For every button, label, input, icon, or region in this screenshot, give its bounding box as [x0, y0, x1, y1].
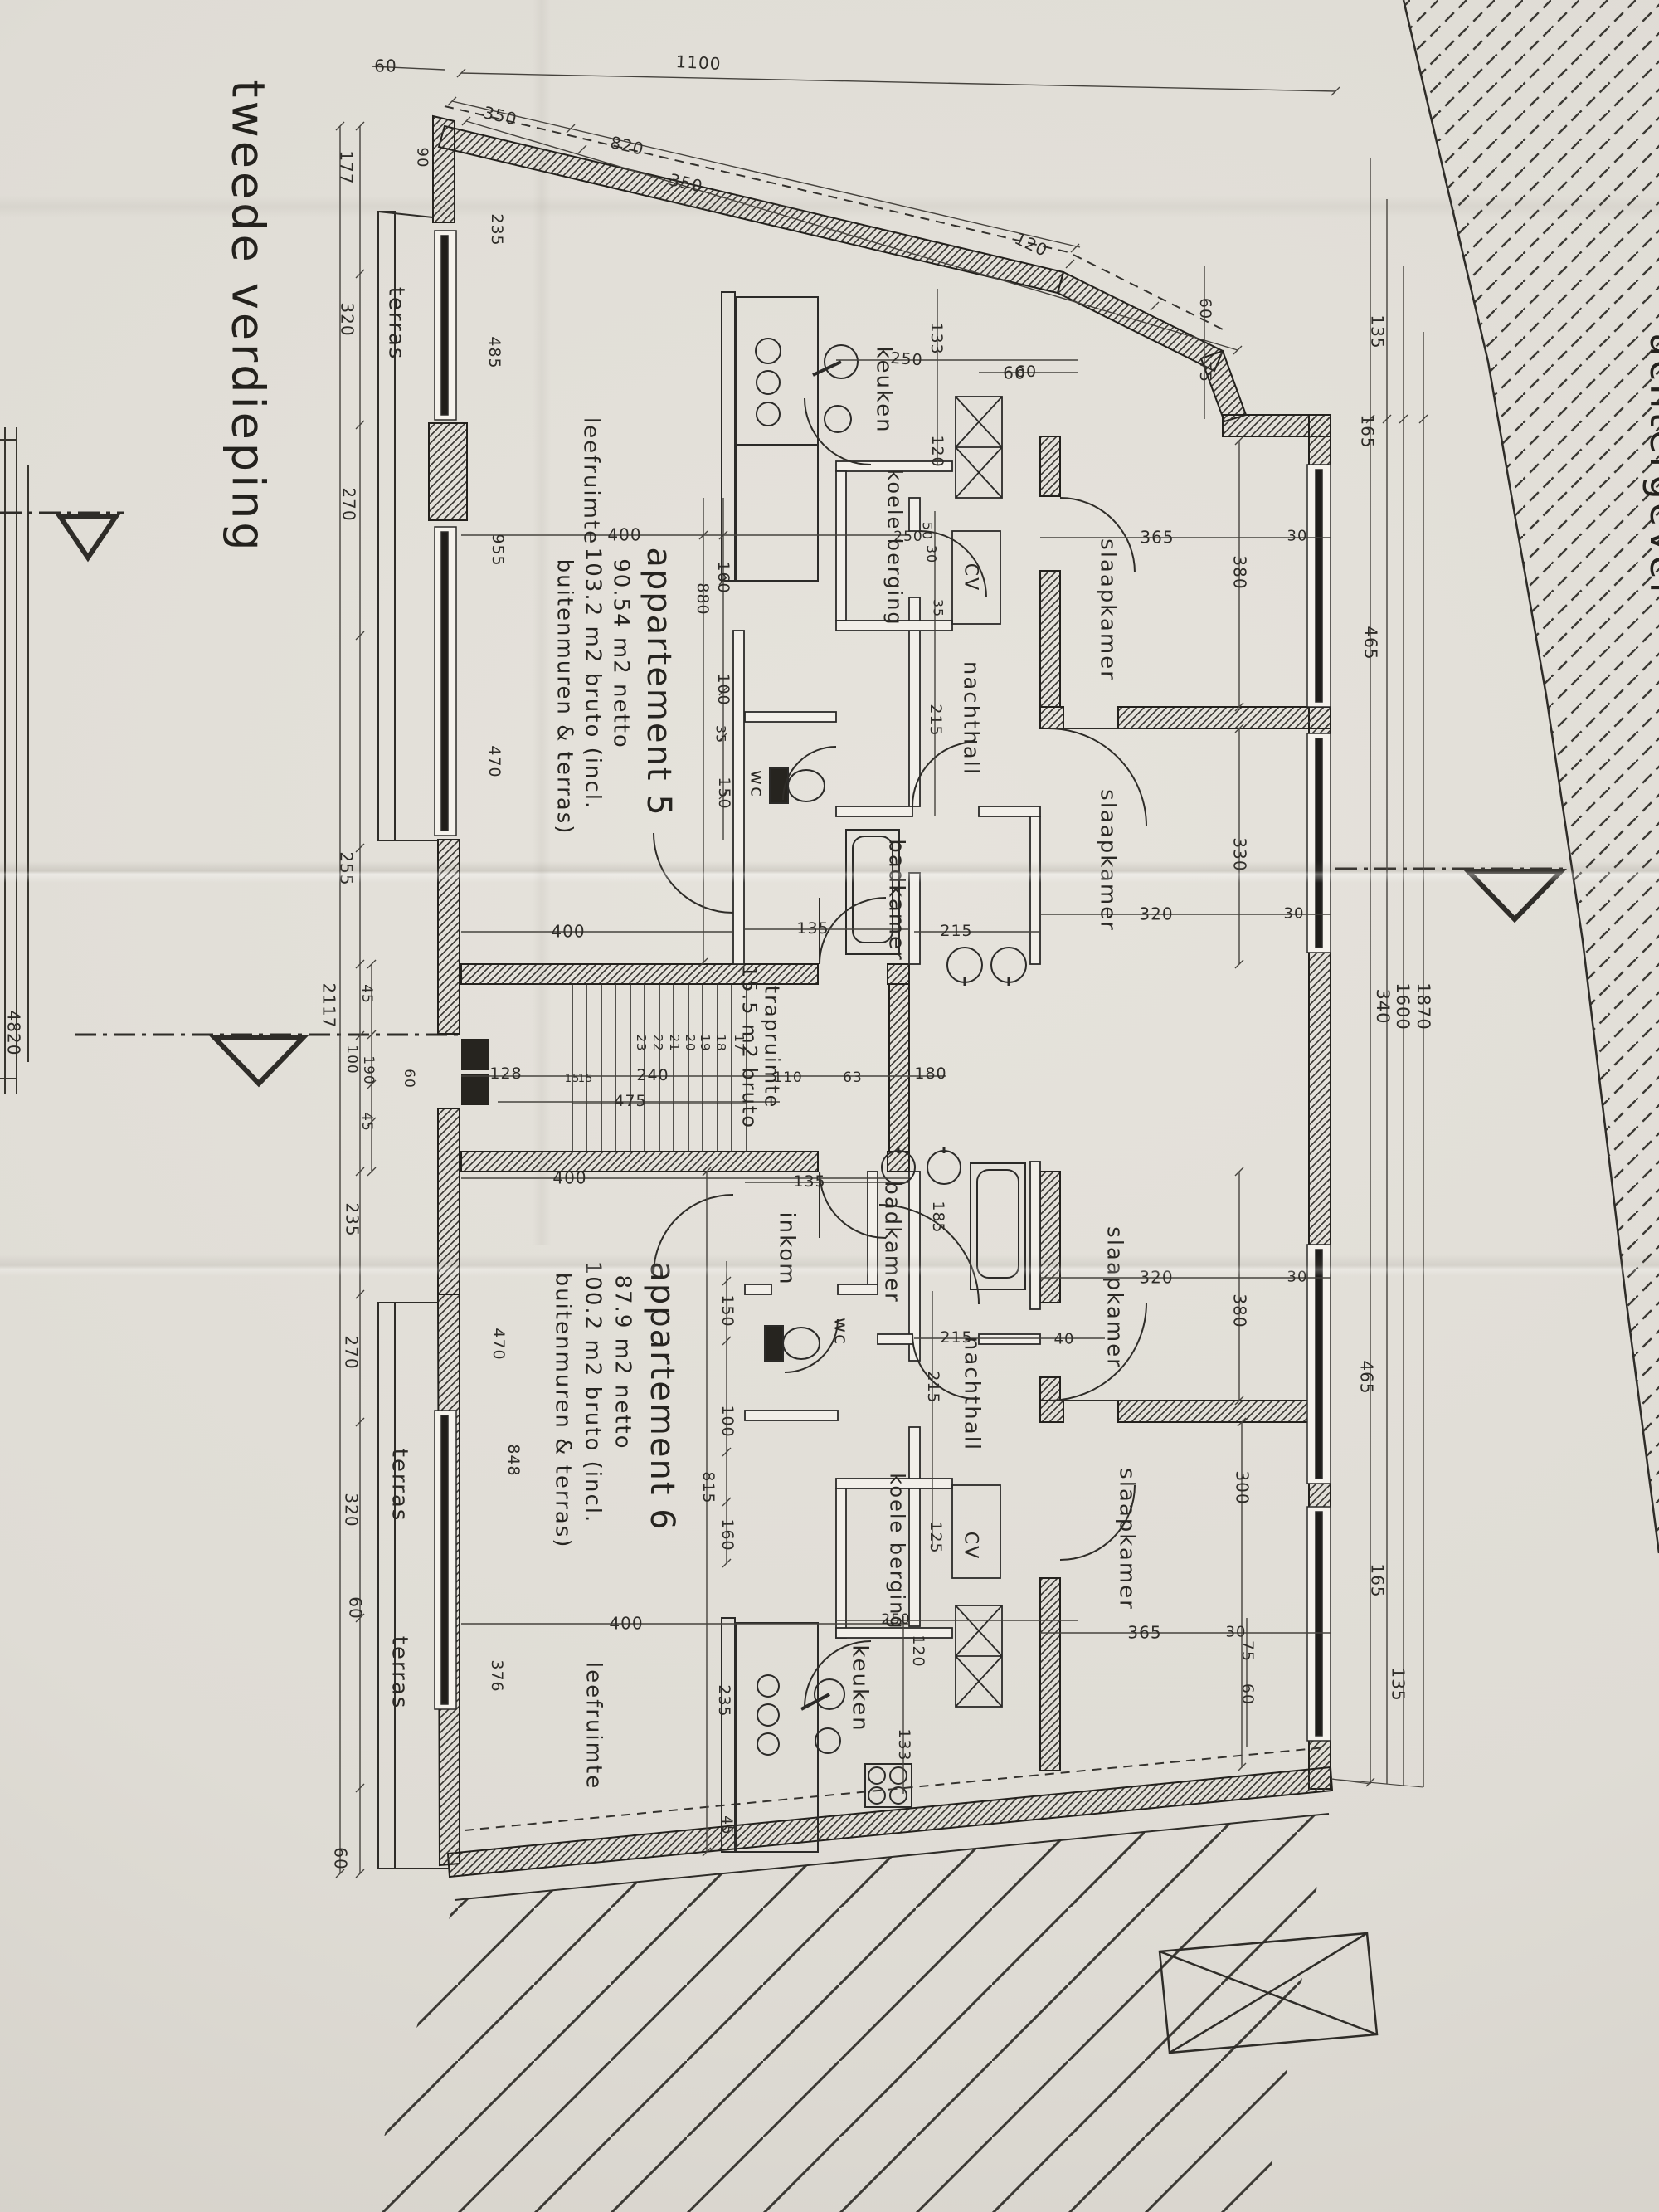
left-fragment	[0, 427, 28, 1094]
entrance-door	[461, 1039, 489, 1105]
interior-walls	[733, 461, 1040, 1638]
floor-plan-photo: tweede verdiepingachtergevel601100350820…	[0, 0, 1659, 2212]
stove-burners	[756, 339, 781, 363]
floor-plan-drawing	[0, 0, 1659, 2212]
bottom-hatch-band	[362, 1814, 1329, 2212]
stair-treads	[572, 984, 747, 1152]
building-walls	[429, 116, 1332, 1877]
neighbor-hatch	[1404, 0, 1659, 1553]
washbasin	[947, 948, 982, 982]
fixtures	[722, 292, 1026, 1852]
windows	[435, 231, 1331, 1741]
shaft-x-brace	[956, 397, 1002, 1707]
